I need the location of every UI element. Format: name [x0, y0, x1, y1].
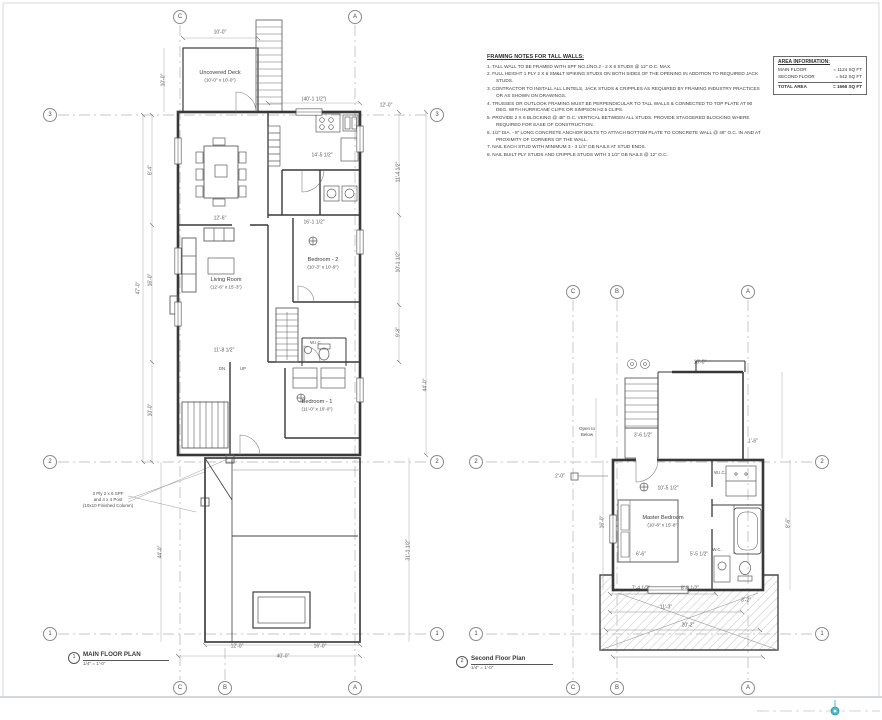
- dimension-label: 16'-0": [601, 516, 606, 529]
- dimension-lines-main: [128, 36, 428, 658]
- room-label-wc-second: W.C.: [712, 548, 721, 552]
- room-dims-living: (12'-6" x 15'-3"): [210, 286, 241, 291]
- grid-bubble: B: [610, 285, 624, 299]
- framing-note: 8. NAIL BUILT PLY STUDS AND CRIPPLE STUD…: [487, 152, 761, 159]
- framing-note: 2. FULL HEIGHT 1 PLY 2 X 6 SM&LT SPIKING…: [487, 71, 761, 85]
- plan-scale-text: 1/4" = 1'-0": [471, 666, 553, 671]
- plan-callout: 1: [68, 652, 80, 664]
- area-info-value: = 1666 SQ FT: [833, 85, 862, 90]
- dimension-label: 12'-0": [231, 645, 244, 650]
- dimension-label: 12'-6": [214, 217, 227, 222]
- post-note-line: (10x10 Finished Column): [83, 503, 133, 509]
- stair-label-dn: DN: [219, 367, 225, 371]
- dimension-label: 10'-0": [694, 361, 707, 366]
- framing-note: 1. TALL WALL TO BE FRAMED WITH SPF NO.1/…: [487, 64, 761, 71]
- grid-bubble: 3: [43, 108, 57, 122]
- grid-bubble: A: [348, 681, 362, 695]
- drawing-sheet: C A 3 3 2 2 1 1 C B A C B A 2 2 1 1 C B …: [0, 0, 882, 720]
- area-info-table: AREA INFORMATION: MAIN FLOOR = 1124 SQ F…: [773, 56, 867, 95]
- framing-notes-title: FRAMING NOTES FOR TALL WALLS:: [487, 55, 761, 61]
- grid-bubble: 1: [43, 627, 57, 641]
- dimension-label: 16'-0": [149, 274, 154, 287]
- area-info-value: = 542 SQ FT: [836, 75, 862, 80]
- post-note: 3 Ply 2 x 6 SPF and 4 x 4 Post (10x10 Fi…: [83, 491, 133, 509]
- grid-bubble: 2: [43, 455, 57, 469]
- dimension-label: 31'-1 1/2": [407, 539, 412, 560]
- dimension-label: 40'-0": [277, 655, 290, 660]
- room-dims-master: (10'-8" x 15'-8"): [647, 524, 678, 529]
- dimension-label: 6'-6": [636, 553, 646, 558]
- dimension-label: 5'-5 1/2": [690, 553, 708, 558]
- grid-bubble: 2: [815, 455, 829, 469]
- annotation-pin[interactable]: [831, 700, 839, 715]
- room-label-bedroom2: Bedroom - 2: [308, 258, 339, 264]
- room-dims-bedroom2: (10'-3" x 10'-9"): [307, 266, 338, 271]
- dimension-label: 20'-2": [682, 624, 695, 629]
- plan-title-text: MAIN FLOOR PLAN: [83, 652, 169, 661]
- room-label-deck: Uncovered Deck: [199, 71, 240, 77]
- grid-bubble: B: [218, 681, 232, 695]
- framing-note: 3. CONTRACTOR TO INSTALL ALL LINTELS, JA…: [487, 86, 761, 100]
- area-info-title: AREA INFORMATION:: [778, 60, 862, 65]
- stair-label-up: UP: [240, 367, 246, 371]
- framing-notes-block: FRAMING NOTES FOR TALL WALLS: 1. TALL WA…: [487, 55, 761, 160]
- area-info-row: MAIN FLOOR = 1124 SQ FT: [778, 68, 862, 73]
- framing-note: 7. NAIL EACH STUD WITH MINIMUM 3 - 3 1/4…: [487, 144, 761, 151]
- room-label-bedroom1: Bedroom - 1: [302, 400, 333, 406]
- second-plan-title-block: 2 Second Floor Plan 1/4" = 1'-0": [456, 656, 553, 671]
- grid-bubble: C: [566, 681, 580, 695]
- plan-title-text: Second Floor Plan: [471, 656, 553, 665]
- dimension-label: 9'-8": [397, 327, 402, 337]
- area-info-label: SECOND FLOOR: [778, 75, 815, 80]
- dimension-label: 3'-2": [741, 599, 751, 604]
- dimension-label: 1'-6": [748, 440, 758, 445]
- framing-note: 4. TRUSSES OR OUTLOOK FRAMING MUST BE PE…: [487, 101, 761, 115]
- dimension-label: 8'-8 1/2": [681, 587, 699, 592]
- dimension-label: 16'-1 1/2": [303, 221, 324, 226]
- dimension-label: 11'-8 1/2": [214, 349, 235, 354]
- framing-note: 5. PROVIDE 2 X 6 BLOCKING @ 48" O.C. VER…: [487, 115, 761, 129]
- open-to-below-line: Below: [579, 432, 595, 438]
- dimension-label: 3'-6 1/2": [634, 434, 652, 439]
- grid-bubble: A: [741, 285, 755, 299]
- dimension-label: 11'-4 1/2": [397, 162, 402, 183]
- room-dims-deck: (10'-0" x 10'-0"): [204, 79, 235, 84]
- dimension-label: 10'-5 1/2": [657, 487, 678, 492]
- room-label-master: Master Bedroom: [642, 516, 683, 522]
- dimension-label: 14'-5 1/2": [311, 154, 332, 159]
- area-info-total-row: TOTAL AREA = 1666 SQ FT: [778, 82, 862, 90]
- dimension-label: 10'-0": [162, 74, 167, 87]
- dimension-label: 12'-0": [380, 104, 393, 109]
- grid-bubble: A: [741, 681, 755, 695]
- dimension-label: 10'-0": [149, 404, 154, 417]
- dimension-label: 11'-3": [660, 606, 672, 611]
- grid-bubble: A: [348, 10, 362, 24]
- dimension-label: 8'-4": [149, 165, 154, 175]
- grid-bubble: 2: [430, 455, 444, 469]
- room-label-wic-main: W.I.C.: [310, 341, 322, 345]
- grid-bubble: 2: [469, 455, 483, 469]
- grid-bubble: C: [566, 285, 580, 299]
- grid-bubble: C: [173, 681, 187, 695]
- dimension-label: 10'-1 1/2": [397, 251, 402, 272]
- grid-bubble: B: [610, 681, 624, 695]
- grid-bubble: 1: [815, 627, 829, 641]
- dimension-label: 2'-0": [555, 475, 565, 480]
- grid-bubble: 1: [469, 627, 483, 641]
- dimension-label: 16'-0": [314, 645, 327, 650]
- room-label-living: Living Room: [210, 278, 241, 284]
- main-floor-plan-linework: [170, 20, 363, 642]
- area-info-label: MAIN FLOOR: [778, 68, 807, 73]
- dimension-label: 44'-0": [424, 379, 429, 392]
- dimension-label: 7'-4 1/2": [632, 587, 650, 592]
- room-dims-bedroom1: (11'-0" x 10'-0"): [302, 408, 333, 413]
- plan-callout: 2: [456, 656, 468, 668]
- dimension-label: 44'-0": [159, 546, 164, 559]
- area-info-row: SECOND FLOOR = 542 SQ FT: [778, 75, 862, 80]
- dimension-label: 10'-0": [214, 31, 227, 36]
- open-to-below-label: Open to Below: [579, 426, 595, 438]
- area-info-value: = 1124 SQ FT: [833, 68, 862, 73]
- grid-bubble: 1: [430, 627, 444, 641]
- plan-scale-text: 1/4" = 1'-0": [83, 662, 169, 667]
- framing-note: 6. 1/2" DIA. - 8" LONG CONCRETE ANCHOR B…: [487, 130, 761, 144]
- main-plan-title-block: 1 MAIN FLOOR PLAN 1/4" = 1'-0": [68, 652, 169, 667]
- dimension-label: 47'-0": [137, 282, 142, 295]
- dimension-label: (40'-1 1/2"): [302, 98, 326, 103]
- area-info-label: TOTAL AREA: [778, 85, 807, 90]
- second-floor-plan-linework: [571, 360, 790, 660]
- dimension-label: 8'-6": [787, 518, 792, 528]
- room-label-wic-second: W.I.C.: [714, 471, 726, 475]
- grid-bubble: 3: [430, 108, 444, 122]
- grid-bubble: C: [173, 10, 187, 24]
